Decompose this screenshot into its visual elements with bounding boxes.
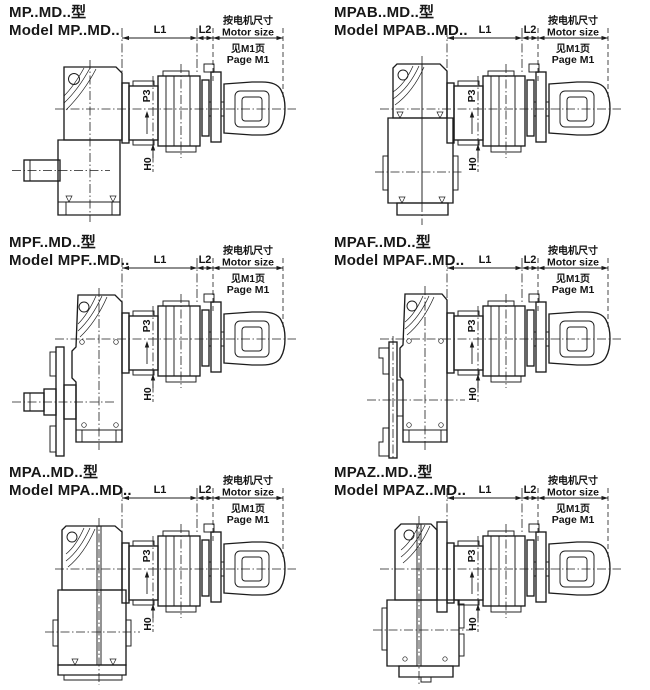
dim-label-p3: P3 <box>141 89 153 102</box>
dim-label-l1: L1 <box>479 254 492 266</box>
panel-title: MPAZ..MD..型 Model MPAZ..MD.. <box>334 464 466 501</box>
panel-title-cn: MPAB..MD..型 <box>334 4 468 22</box>
dim-label-l1: L1 <box>479 484 492 496</box>
panel-title-cn: MPAZ..MD..型 <box>334 464 466 482</box>
motor-note-cn1: 按电机尺寸 <box>223 474 273 487</box>
dim-label-h0: H0 <box>467 617 479 631</box>
panel-mp: MP..MD..型 Model MP..MD.. <box>0 0 325 230</box>
panel-mpaz: MPAZ..MD..型 Model MPAZ..MD.. <box>325 460 650 690</box>
adapter-motor-assembly <box>55 64 296 172</box>
dim-label-l2: L2 <box>524 24 537 36</box>
panel-title: MPA..MD..型 Model MPA..MD.. <box>9 464 132 501</box>
catalog-page: MP..MD..型 Model MP..MD.. <box>0 0 650 690</box>
panel-mpa: MPA..MD..型 Model MPA..MD.. <box>0 460 325 690</box>
panel-mpf: MPF..MD..型 Model MPF..MD.. <box>0 230 325 460</box>
gearbox-outline <box>12 60 122 222</box>
panel-title-en: Model MPAB..MD.. <box>334 22 468 40</box>
panel-title-en: Model MP..MD.. <box>9 22 120 40</box>
panel-mpab: MPAB..MD..型 Model MPAB..MD.. <box>325 0 650 230</box>
dim-label-h0: H0 <box>467 387 479 401</box>
panel-title-en: Model MPAZ..MD.. <box>334 482 466 500</box>
motor-note-en2: Page M1 <box>227 514 270 526</box>
motor-note-en2: Page M1 <box>552 284 595 296</box>
motor-note-cn1: 按电机尺寸 <box>223 244 273 257</box>
dim-label-l1: L1 <box>154 24 167 36</box>
motor-note-en2: Page M1 <box>227 54 270 66</box>
panel-title: MPF..MD..型 Model MPF..MD.. <box>9 234 130 271</box>
motor-note-en2: Page M1 <box>552 54 595 66</box>
motor-note-en1: Motor size <box>222 257 274 269</box>
motor-note-en2: Page M1 <box>552 514 595 526</box>
motor-note-en1: Motor size <box>547 27 599 39</box>
motor-note-cn1: 按电机尺寸 <box>548 244 598 257</box>
panel-title-cn: MPF..MD..型 <box>9 234 130 252</box>
motor-note-en2: Page M1 <box>227 284 270 296</box>
motor-note-cn1: 按电机尺寸 <box>223 14 273 27</box>
motor-note-en1: Motor size <box>547 487 599 499</box>
dim-label-l2: L2 <box>199 24 212 36</box>
dim-label-p3: P3 <box>141 549 153 562</box>
dim-label-p3: P3 <box>466 549 478 562</box>
panel-title-cn: MP..MD..型 <box>9 4 120 22</box>
panel-title: MPAB..MD..型 Model MPAB..MD.. <box>334 4 468 41</box>
adapter-motor-assembly <box>55 294 296 402</box>
dim-label-h0: H0 <box>467 157 479 171</box>
panel-title: MP..MD..型 Model MP..MD.. <box>9 4 120 41</box>
panel-title-en: Model MPA..MD.. <box>9 482 132 500</box>
gearbox-outline <box>12 288 122 456</box>
panel-title: MPAF..MD..型 Model MPAF..MD.. <box>334 234 464 271</box>
panel-mpaf: MPAF..MD..型 Model MPAF..MD.. <box>325 230 650 460</box>
dim-label-p3: P3 <box>141 319 153 332</box>
adapter-motor-assembly <box>380 294 621 402</box>
dim-label-h0: H0 <box>142 387 154 401</box>
dim-label-h0: H0 <box>142 157 154 171</box>
motor-note-cn1: 按电机尺寸 <box>548 14 598 27</box>
dim-label-p3: P3 <box>466 89 478 102</box>
motor-note-cn1: 按电机尺寸 <box>548 474 598 487</box>
dim-label-l1: L1 <box>479 24 492 36</box>
dim-label-l2: L2 <box>199 484 212 496</box>
dim-label-p3: P3 <box>466 319 478 332</box>
adapter-motor-assembly <box>55 524 296 632</box>
panel-title-cn: MPA..MD..型 <box>9 464 132 482</box>
motor-note-en1: Motor size <box>222 27 274 39</box>
gearbox-outline <box>375 56 463 225</box>
dim-label-h0: H0 <box>142 617 154 631</box>
motor-note-en1: Motor size <box>222 487 274 499</box>
panel-title-en: Model MPAF..MD.. <box>334 252 464 270</box>
panel-title-en: Model MPF..MD.. <box>9 252 130 270</box>
panel-title-cn: MPAF..MD..型 <box>334 234 464 252</box>
dim-label-l2: L2 <box>199 254 212 266</box>
dim-label-l1: L1 <box>154 484 167 496</box>
dim-label-l2: L2 <box>524 254 537 266</box>
dim-label-l1: L1 <box>154 254 167 266</box>
motor-note-en1: Motor size <box>547 257 599 269</box>
dim-label-l2: L2 <box>524 484 537 496</box>
